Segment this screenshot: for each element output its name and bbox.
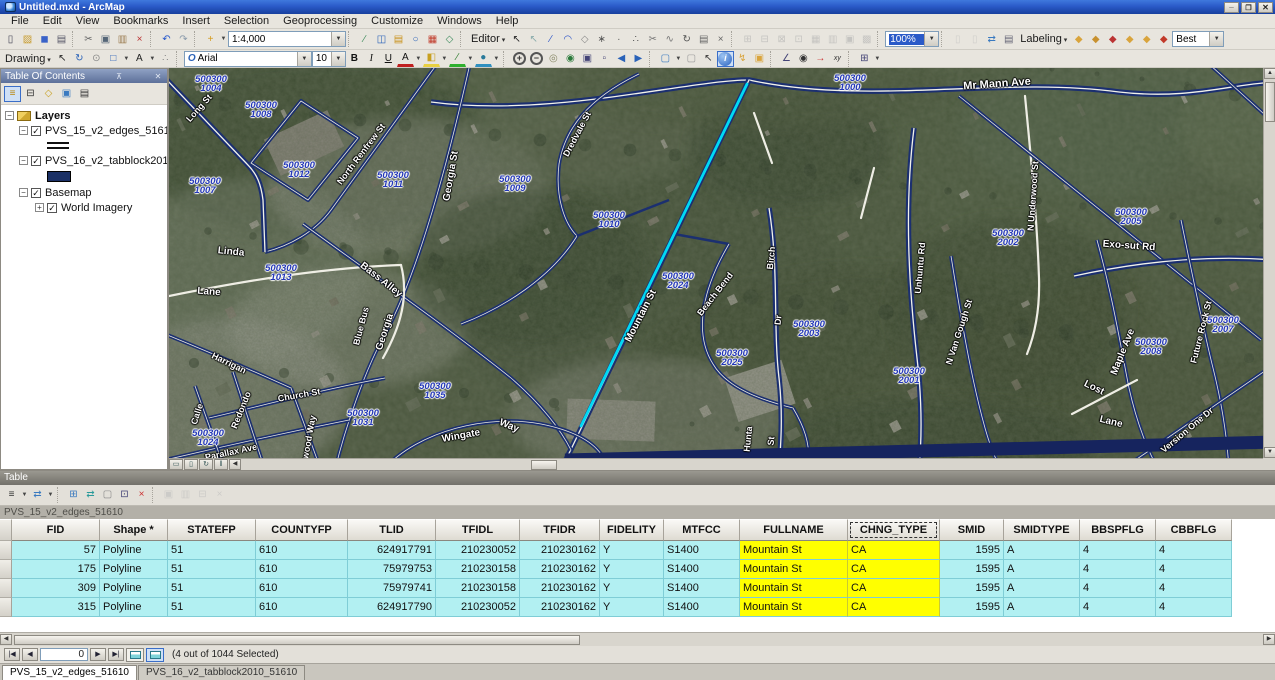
cell-fid[interactable]: 57 <box>12 541 100 560</box>
full-extent-button[interactable]: ◉ <box>562 51 579 67</box>
current-record-input[interactable]: 0 <box>40 648 88 661</box>
dropdown-arrow-icon[interactable]: ▼ <box>122 51 131 67</box>
table-hscroll-thumb[interactable] <box>14 635 580 645</box>
html-popup-tool-icon[interactable]: ▣ <box>751 51 768 67</box>
cell-bbspflg[interactable]: 4 <box>1080 579 1156 598</box>
cell-chng-type[interactable]: CA <box>848 598 940 617</box>
cell-fid[interactable]: 175 <box>12 560 100 579</box>
cell-countyfp[interactable]: 610 <box>256 541 348 560</box>
layer-checkbox[interactable]: ✓ <box>47 203 57 213</box>
zoom-percent-combo[interactable]: 100%▼ <box>885 31 939 47</box>
scroll-left-arrow[interactable]: ◀ <box>0 634 12 645</box>
measure-tool-icon[interactable]: ∠ <box>778 51 795 67</box>
editor-menu-label[interactable]: Editor <box>468 33 508 45</box>
toc-options-button[interactable]: ▤ <box>76 86 93 102</box>
pause-drawing-button[interactable]: ‖ <box>214 459 228 470</box>
toolbar-separator <box>194 31 200 47</box>
expand-collapse-icon[interactable]: − <box>5 111 14 120</box>
cell-fid[interactable]: 309 <box>12 579 100 598</box>
pin-icon[interactable]: ⊼ <box>114 72 124 81</box>
topology-edit-icon[interactable]: ⊞ <box>739 31 756 47</box>
attribute-grid[interactable]: FIDShape *STATEFPCOUNTYFPTLIDTFIDLTFIDRF… <box>0 519 1275 632</box>
map-topology-icon[interactable]: ▦ <box>807 31 824 47</box>
edit-tool-icon[interactable]: ↖ <box>508 31 525 47</box>
catalog-window-button[interactable]: ▤ <box>390 31 407 47</box>
list-by-selection-button[interactable]: ▣ <box>58 86 75 102</box>
identify-i-glyph: i <box>718 52 732 66</box>
cell-shape-[interactable]: Polyline <box>100 598 168 617</box>
toolbar-separator <box>72 31 78 47</box>
cell-tlid[interactable]: 624917790 <box>348 598 436 617</box>
data-view-button[interactable]: ▭ <box>169 459 183 470</box>
go-back-extent-button[interactable]: ◀ <box>613 51 630 67</box>
rotate-tool-icon[interactable]: ↻ <box>678 31 695 47</box>
scroll-left-arrow[interactable]: ◀ <box>229 459 241 470</box>
scroll-right-arrow[interactable]: ▶ <box>1263 634 1275 645</box>
menu-file[interactable]: File <box>4 15 36 27</box>
dropdown-arrow-icon[interactable]: ▼ <box>414 51 423 67</box>
labeling-quality-combo[interactable]: Best▼ <box>1172 31 1224 47</box>
column-header-countyfp[interactable]: COUNTYFP <box>256 519 348 541</box>
cell-smid[interactable]: 1595 <box>940 541 1004 560</box>
viewer-window-tool-icon[interactable]: ⊞ <box>856 51 873 67</box>
table-layer-label: PVS_15_v2_edges_51610 <box>4 507 123 518</box>
menu-bar: FileEditViewBookmarksInsertSelectionGeop… <box>0 14 1275 29</box>
italic-button[interactable]: I <box>363 51 380 67</box>
attributes-window-icon[interactable]: ▤ <box>695 31 712 47</box>
cell-smid[interactable]: 1595 <box>940 598 1004 617</box>
clear-selected-features-icon[interactable]: ▢ <box>683 51 700 67</box>
table-tab-pvs_16_v2_tabblock2010_51610[interactable]: PVS_16_v2_tabblock2010_51610 <box>138 665 305 680</box>
table-of-contents-panel: Table Of Contents ⊼ ✕ ≡⊟◇▣▤ − Layers − ✓… <box>0 68 168 470</box>
cell-countyfp[interactable]: 610 <box>256 560 348 579</box>
cell-countyfp[interactable]: 610 <box>256 598 348 617</box>
cell-mtfcc[interactable]: S1400 <box>664 541 740 560</box>
font-name-combo[interactable]: OArial▼ <box>184 51 312 67</box>
delete-record-icon[interactable]: × <box>211 487 228 503</box>
cell-fullname[interactable]: Mountain St <box>740 560 848 579</box>
cell-smidtype[interactable]: A <box>1004 598 1080 617</box>
edit-annotation-tool-icon[interactable]: ↖ <box>525 31 542 47</box>
expand-collapse-icon[interactable]: + <box>35 203 44 212</box>
cell-fidelity[interactable]: Y <box>600 541 664 560</box>
drawing-tools-toolbar-row: Drawing↖↻⊙□▼A▼∴OArial▼10▼BIUA▼◧▼∕▼●▼+−◎◉… <box>0 50 1275 68</box>
go-to-xy-tool-icon[interactable]: xy <box>829 51 846 67</box>
cell-smid[interactable]: 1595 <box>940 560 1004 579</box>
toc-toolbar: ≡⊟◇▣▤ <box>1 83 167 105</box>
dropdown-arrow-icon[interactable]: ▼ <box>466 51 475 67</box>
expand-collapse-icon[interactable]: − <box>19 188 28 197</box>
cell-bbspflg[interactable]: 4 <box>1080 598 1156 617</box>
toolbar-separator <box>150 31 156 47</box>
column-header-bbspflg[interactable]: BBSPFLG <box>1080 519 1156 541</box>
fixed-zoom-in-button[interactable]: ▣ <box>579 51 596 67</box>
switch-selection-button[interactable]: ⇄ <box>82 487 99 503</box>
toolbar-separator <box>941 31 947 47</box>
clear-selection-button[interactable]: ▢ <box>99 487 116 503</box>
cell-fidelity[interactable]: Y <box>600 560 664 579</box>
add-data-button[interactable]: + <box>202 31 219 47</box>
table-panel-title: Table <box>4 472 28 483</box>
edit-toolbar-toggle-icon[interactable]: ∕ <box>356 31 373 47</box>
print-button[interactable]: ▤ <box>53 31 70 47</box>
row-selector[interactable] <box>0 579 12 598</box>
font-name-combo-value: Arial <box>198 53 297 64</box>
edit-vertices-tool-icon[interactable]: ∴ <box>157 51 174 67</box>
cell-smidtype[interactable]: A <box>1004 541 1080 560</box>
menu-windows[interactable]: Windows <box>430 15 489 27</box>
menu-view[interactable]: View <box>69 15 107 27</box>
cell-tfidr[interactable]: 210230162 <box>520 598 600 617</box>
toolbar-separator <box>503 51 509 67</box>
dropdown-arrow-icon[interactable]: ▼ <box>46 487 55 503</box>
line-color-button[interactable]: ∕ <box>449 51 466 67</box>
column-header-fid[interactable]: FID <box>12 519 100 541</box>
row-selector[interactable] <box>0 598 12 617</box>
toolbar-separator <box>348 31 354 47</box>
zoom-to-selected-elements-icon[interactable]: ⊙ <box>88 51 105 67</box>
save-button[interactable]: ◼ <box>36 31 53 47</box>
cell-cbbflg[interactable]: 4 <box>1156 579 1232 598</box>
expand-collapse-icon[interactable]: − <box>19 156 28 165</box>
select-elements-icon[interactable]: ↖ <box>700 51 717 67</box>
dropdown-arrow-icon[interactable]: ▼ <box>331 52 345 66</box>
lock-labels-button[interactable]: ◆ <box>1121 31 1138 47</box>
delete-icon[interactable]: × <box>131 31 148 47</box>
swipe-layer-button[interactable]: ⇄ <box>983 31 1000 47</box>
dropdown-arrow-icon[interactable]: ▼ <box>148 51 157 67</box>
map-scale-combo-value: 1:4,000 <box>232 34 331 45</box>
column-header-cbbflg[interactable]: CBBFLG <box>1156 519 1232 541</box>
paste-icon[interactable]: ▥ <box>114 31 131 47</box>
fixed-zoom-out-button[interactable]: ▫ <box>596 51 613 67</box>
copy-records-icon[interactable]: ▣ <box>160 487 177 503</box>
menu-selection[interactable]: Selection <box>217 15 276 27</box>
row-selector[interactable] <box>0 560 12 579</box>
cell-smidtype[interactable]: A <box>1004 579 1080 598</box>
scroll-up-arrow[interactable]: ▲ <box>1264 68 1275 79</box>
rotate-element-tool-icon[interactable]: ↻ <box>71 51 88 67</box>
split-tool-icon[interactable]: × <box>712 31 729 47</box>
toc-title-bar: Table Of Contents ⊼ ✕ <box>1 69 167 83</box>
midpoint-tool-icon[interactable]: ∙ <box>610 31 627 47</box>
redo-button[interactable]: ↷ <box>175 31 192 47</box>
show-selected-records-button[interactable] <box>146 648 164 662</box>
map-horizontal-scrollbar[interactable]: ▭ ▯ ↻ ‖ ◀ <box>169 458 1263 470</box>
previous-record-button[interactable]: ◀ <box>22 648 38 661</box>
column-header-tlid[interactable]: TLID <box>348 519 436 541</box>
font-size-combo[interactable]: 10▼ <box>312 51 346 67</box>
show-all-records-button[interactable] <box>126 648 144 662</box>
python-window-button[interactable]: ◇ <box>441 31 458 47</box>
zoom-out-tool-icon[interactable]: − <box>530 52 543 65</box>
table-of-contents-window-button[interactable]: ◫ <box>373 31 390 47</box>
topology-errors-icon[interactable]: ⊟ <box>756 31 773 47</box>
rectangle-tool-icon[interactable]: □ <box>105 51 122 67</box>
table-layer-label-bar: PVS_15_v2_edges_51610 <box>0 506 1275 519</box>
table-row[interactable]: 175Polyline51610759797532102301582102301… <box>0 560 1275 579</box>
cell-fullname[interactable]: Mountain St <box>740 598 848 617</box>
pan-tool-icon[interactable]: ◎ <box>545 51 562 67</box>
underline-button[interactable]: U <box>380 51 397 67</box>
search-window-button[interactable]: ○ <box>407 31 424 47</box>
table-options-button[interactable]: ≡ <box>3 487 20 503</box>
insert-record-icon[interactable]: ⊟ <box>194 487 211 503</box>
toc-title: Table Of Contents <box>5 71 85 82</box>
cell-tfidl[interactable]: 210230052 <box>436 541 520 560</box>
next-record-button[interactable]: ▶ <box>90 648 106 661</box>
cell-chng-type[interactable]: CA <box>848 579 940 598</box>
zoom-in-tool-icon[interactable]: + <box>513 52 526 65</box>
row-selector[interactable] <box>0 541 12 560</box>
table-row[interactable]: 309Polyline51610759797412102301582102301… <box>0 579 1275 598</box>
titlebar: Untitled.mxd - ArcMap <box>0 0 1275 14</box>
close-button[interactable] <box>1258 2 1273 13</box>
toolbar-separator <box>848 51 854 67</box>
cell-tlid[interactable]: 75979753 <box>348 560 436 579</box>
topology-fix-icon[interactable]: ⊡ <box>790 31 807 47</box>
arcmap-app-icon <box>5 2 16 12</box>
list-by-drawing-order-button[interactable]: ≡ <box>4 86 21 102</box>
table-panel-title-bar: Table <box>0 471 1275 485</box>
toc-layers-root[interactable]: Layers <box>35 110 70 122</box>
drawing-menu-label[interactable]: Drawing <box>2 53 54 65</box>
table-toolbar: ≡▼⇄▼⊞⇄▢⊡×▣▥⊟× <box>0 485 1275 506</box>
view-unplaced-labels-button[interactable]: ◆ <box>1155 31 1172 47</box>
menu-insert[interactable]: Insert <box>175 15 217 27</box>
attribute-table-panel: Table ≡▼⇄▼⊞⇄▢⊡×▣▥⊟× PVS_15_v2_edges_5161… <box>0 470 1275 680</box>
viewer-window-button[interactable]: ▯ <box>949 31 966 47</box>
dropdown-arrow-icon[interactable]: ▼ <box>297 52 311 66</box>
dropdown-arrow-icon[interactable]: ▼ <box>20 487 29 503</box>
dropdown-arrow-icon[interactable]: ▼ <box>331 32 345 46</box>
cell-tfidr[interactable]: 210230162 <box>520 579 600 598</box>
endpoint-arc-tool-icon[interactable]: ◠ <box>559 31 576 47</box>
label-priority-ranking-button[interactable]: ◆ <box>1087 31 1104 47</box>
table-row[interactable]: 57Polyline516106249177912102300522102301… <box>0 541 1275 560</box>
map-scale-combo[interactable]: 1:4,000▼ <box>228 31 346 47</box>
table-tab-pvs_15_v2_edges_51610[interactable]: PVS_15_v2_edges_51610 <box>2 665 137 680</box>
layer-checkbox[interactable]: ✓ <box>31 156 41 166</box>
cell-tfidl[interactable]: 210230052 <box>436 598 520 617</box>
cell-tfidl[interactable]: 210230158 <box>436 579 520 598</box>
dropdown-arrow-icon[interactable]: ▼ <box>873 51 882 67</box>
column-header-smidtype[interactable]: SMIDTYPE <box>1004 519 1080 541</box>
map-canvas <box>169 68 1275 470</box>
row-selector-header <box>0 519 12 541</box>
tabblock-fill-symbol[interactable] <box>47 171 71 182</box>
labeling-quality-combo-value: Best <box>1176 34 1209 45</box>
zoom-percent-combo-value: 100% <box>889 34 924 45</box>
column-header-fullname[interactable]: FULLNAME <box>740 519 848 541</box>
labeling-menu-label[interactable]: Labeling <box>1017 33 1070 45</box>
column-header-tfidr[interactable]: TFIDR <box>520 519 600 541</box>
column-header-shape-[interactable]: Shape * <box>100 519 168 541</box>
cell-mtfcc[interactable]: S1400 <box>664 560 740 579</box>
dropdown-arrow-icon[interactable]: ▼ <box>924 32 938 46</box>
cell-smidtype[interactable]: A <box>1004 560 1080 579</box>
font-icon: O <box>188 53 196 64</box>
minimize-button[interactable] <box>1224 2 1239 13</box>
straight-segment-tool-icon[interactable]: ∕ <box>542 31 559 47</box>
cell-fidelity[interactable]: Y <box>600 579 664 598</box>
identify-tool-icon[interactable]: i <box>717 51 734 67</box>
grid-icon[interactable]: ▩ <box>858 31 875 47</box>
cell-mtfcc[interactable]: S1400 <box>664 598 740 617</box>
cut-icon[interactable]: ✂ <box>80 31 97 47</box>
layout-view-button[interactable]: ▯ <box>184 459 198 470</box>
table-row[interactable]: 315Polyline51610624917790210230052210230… <box>0 598 1275 617</box>
scroll-down-arrow[interactable]: ▼ <box>1264 447 1275 458</box>
cut-polygons-tool-icon[interactable]: ✂ <box>644 31 661 47</box>
toolbar-separator <box>152 487 158 503</box>
cell-fullname[interactable]: Mountain St <box>740 579 848 598</box>
cell-countyfp[interactable]: 610 <box>256 579 348 598</box>
toc-layer-tabblock[interactable]: PVS_16_v2_tabblock2010_51610 <box>45 155 167 167</box>
cell-bbspflg[interactable]: 4 <box>1080 541 1156 560</box>
sketch-properties-icon[interactable]: ∴ <box>627 31 644 47</box>
cell-statefp[interactable]: 51 <box>168 541 256 560</box>
cell-tlid[interactable]: 75979741 <box>348 579 436 598</box>
cell-cbbflg[interactable]: 4 <box>1156 541 1232 560</box>
column-header-smid[interactable]: SMID <box>940 519 1004 541</box>
menu-bookmarks[interactable]: Bookmarks <box>106 15 175 27</box>
column-header-tfidl[interactable]: TFIDL <box>436 519 520 541</box>
restore-button[interactable] <box>1241 2 1256 13</box>
dropdown-arrow-icon[interactable]: ▼ <box>219 31 228 47</box>
table-horizontal-scrollbar[interactable]: ◀ ▶ <box>0 632 1275 646</box>
paste-records-icon[interactable]: ▥ <box>177 487 194 503</box>
expand-collapse-icon[interactable]: − <box>19 126 28 135</box>
menu-help[interactable]: Help <box>489 15 526 27</box>
pause-labeling-button[interactable]: ◆ <box>1138 31 1155 47</box>
map-hscroll-thumb[interactable] <box>531 460 557 470</box>
cell-shape-[interactable]: Polyline <box>100 579 168 598</box>
layer-checkbox[interactable]: ✓ <box>31 126 41 136</box>
cell-fidelity[interactable]: Y <box>600 598 664 617</box>
list-by-source-button[interactable]: ⊟ <box>22 86 39 102</box>
select-features-tool-icon[interactable]: ▢ <box>657 51 674 67</box>
column-header-mtfcc[interactable]: MTFCC <box>664 519 740 541</box>
dropdown-arrow-icon[interactable]: ▼ <box>1209 32 1223 46</box>
cell-fid[interactable]: 315 <box>12 598 100 617</box>
related-tables-button[interactable]: ⇄ <box>29 487 46 503</box>
window-title: Untitled.mxd - ArcMap <box>19 2 125 13</box>
column-header-statefp[interactable]: STATEFP <box>168 519 256 541</box>
first-record-button[interactable]: |◀ <box>4 648 20 661</box>
cell-cbbflg[interactable]: 4 <box>1156 560 1232 579</box>
list-by-visibility-button[interactable]: ◇ <box>40 86 57 102</box>
cell-statefp[interactable]: 51 <box>168 560 256 579</box>
font-color-button[interactable]: A <box>397 51 414 67</box>
fill-color-button[interactable]: ◧ <box>423 51 440 67</box>
font-size-combo-value: 10 <box>316 53 331 64</box>
last-record-button[interactable]: ▶| <box>108 648 124 661</box>
map-vertical-scrollbar[interactable]: ▲ ▼ <box>1263 68 1275 458</box>
topology-validate-icon[interactable]: ⊠ <box>773 31 790 47</box>
open-button[interactable]: ▨ <box>19 31 36 47</box>
copy-icon[interactable]: ▣ <box>97 31 114 47</box>
reshape-feature-tool-icon[interactable]: ∿ <box>661 31 678 47</box>
toolbar-separator <box>460 31 466 47</box>
cell-smid[interactable]: 1595 <box>940 579 1004 598</box>
hyperlink-tool-icon[interactable]: ↯ <box>734 51 751 67</box>
bold-button[interactable]: B <box>346 51 363 67</box>
dropdown-arrow-icon[interactable]: ▼ <box>440 51 449 67</box>
menu-customize[interactable]: Customize <box>364 15 430 27</box>
cell-mtfcc[interactable]: S1400 <box>664 579 740 598</box>
delete-selected-button[interactable]: × <box>133 487 150 503</box>
toc-layer-basemap[interactable]: Basemap <box>45 187 91 199</box>
marker-color-button[interactable]: ● <box>475 51 492 67</box>
label-manager-button[interactable]: ◆ <box>1070 31 1087 47</box>
shared-features-icon[interactable]: ▥ <box>824 31 841 47</box>
cell-statefp[interactable]: 51 <box>168 598 256 617</box>
menu-edit[interactable]: Edit <box>36 15 69 27</box>
cell-bbspflg[interactable]: 4 <box>1080 560 1156 579</box>
export-map-button[interactable]: ▤ <box>1000 31 1017 47</box>
standard-toolbar-row: ▯▨◼▤✂▣▥×↶↷+▼1:4,000▼∕◫▤○▦◇Editor↖↖∕◠◇∗∙∴… <box>0 29 1275 50</box>
cell-tfidr[interactable]: 210230162 <box>520 560 600 579</box>
cell-tlid[interactable]: 624917791 <box>348 541 436 560</box>
layer-checkbox[interactable]: ✓ <box>31 188 41 198</box>
cell-shape-[interactable]: Polyline <box>100 560 168 579</box>
cell-chng-type[interactable]: CA <box>848 560 940 579</box>
dropdown-arrow-icon[interactable]: ▼ <box>674 51 683 67</box>
table-tabs-bar: PVS_15_v2_edges_51610PVS_16_v2_tabblock2… <box>0 663 1275 680</box>
new-map-button[interactable]: ▯ <box>2 31 19 47</box>
map-vscroll-thumb[interactable] <box>1265 82 1275 122</box>
cell-chng-type[interactable]: CA <box>848 541 940 560</box>
dropdown-arrow-icon[interactable]: ▼ <box>492 51 501 67</box>
toc-layer-world-imagery[interactable]: World Imagery <box>61 202 132 214</box>
cell-cbbflg[interactable]: 4 <box>1156 598 1232 617</box>
go-forward-extent-button[interactable]: ▶ <box>630 51 647 67</box>
toolbar-separator <box>731 31 737 47</box>
selection-status-text: (4 out of 1044 Selected) <box>172 649 279 660</box>
cell-shape-[interactable]: Polyline <box>100 541 168 560</box>
scrollbar-corner <box>1263 458 1275 470</box>
select-elements-tool-icon[interactable]: ↖ <box>54 51 71 67</box>
label-weight-ranking-button[interactable]: ◆ <box>1104 31 1121 47</box>
find-tool-icon[interactable]: ◉ <box>795 51 812 67</box>
undo-button[interactable]: ↶ <box>158 31 175 47</box>
point-intersection-tool-icon[interactable]: ∗ <box>593 31 610 47</box>
cell-tfidr[interactable]: 210230162 <box>520 541 600 560</box>
cell-fullname[interactable]: Mountain St <box>740 541 848 560</box>
toolbar-separator <box>770 51 776 67</box>
toc-layer-edges[interactable]: PVS_15_v2_edges_51610 <box>45 125 167 137</box>
close-icon[interactable]: ✕ <box>153 72 163 81</box>
edges-line-symbol[interactable] <box>47 142 69 149</box>
magnifier-window-button[interactable]: ▯ <box>966 31 983 47</box>
select-by-attributes-button[interactable]: ⊞ <box>65 487 82 503</box>
column-header-fidelity[interactable]: FIDELITY <box>600 519 664 541</box>
layers-group-icon <box>17 111 31 121</box>
trace-tool-icon[interactable]: ◇ <box>576 31 593 47</box>
arctoolbox-button[interactable]: ▦ <box>424 31 441 47</box>
column-header-chng-type[interactable]: CHNG_TYPE <box>848 519 940 541</box>
refresh-view-button[interactable]: ↻ <box>199 459 213 470</box>
cell-tfidl[interactable]: 210230158 <box>436 560 520 579</box>
menu-geoprocessing[interactable]: Geoprocessing <box>276 15 364 27</box>
snapping-icon[interactable]: ▣ <box>841 31 858 47</box>
find-route-tool-icon[interactable]: → <box>812 51 829 67</box>
text-tool-icon[interactable]: A <box>131 51 148 67</box>
cell-statefp[interactable]: 51 <box>168 579 256 598</box>
map-view[interactable]: Long StNorth Renfrew StLindaLaneBass All… <box>169 68 1275 470</box>
zoom-to-selected-button[interactable]: ⊡ <box>116 487 133 503</box>
